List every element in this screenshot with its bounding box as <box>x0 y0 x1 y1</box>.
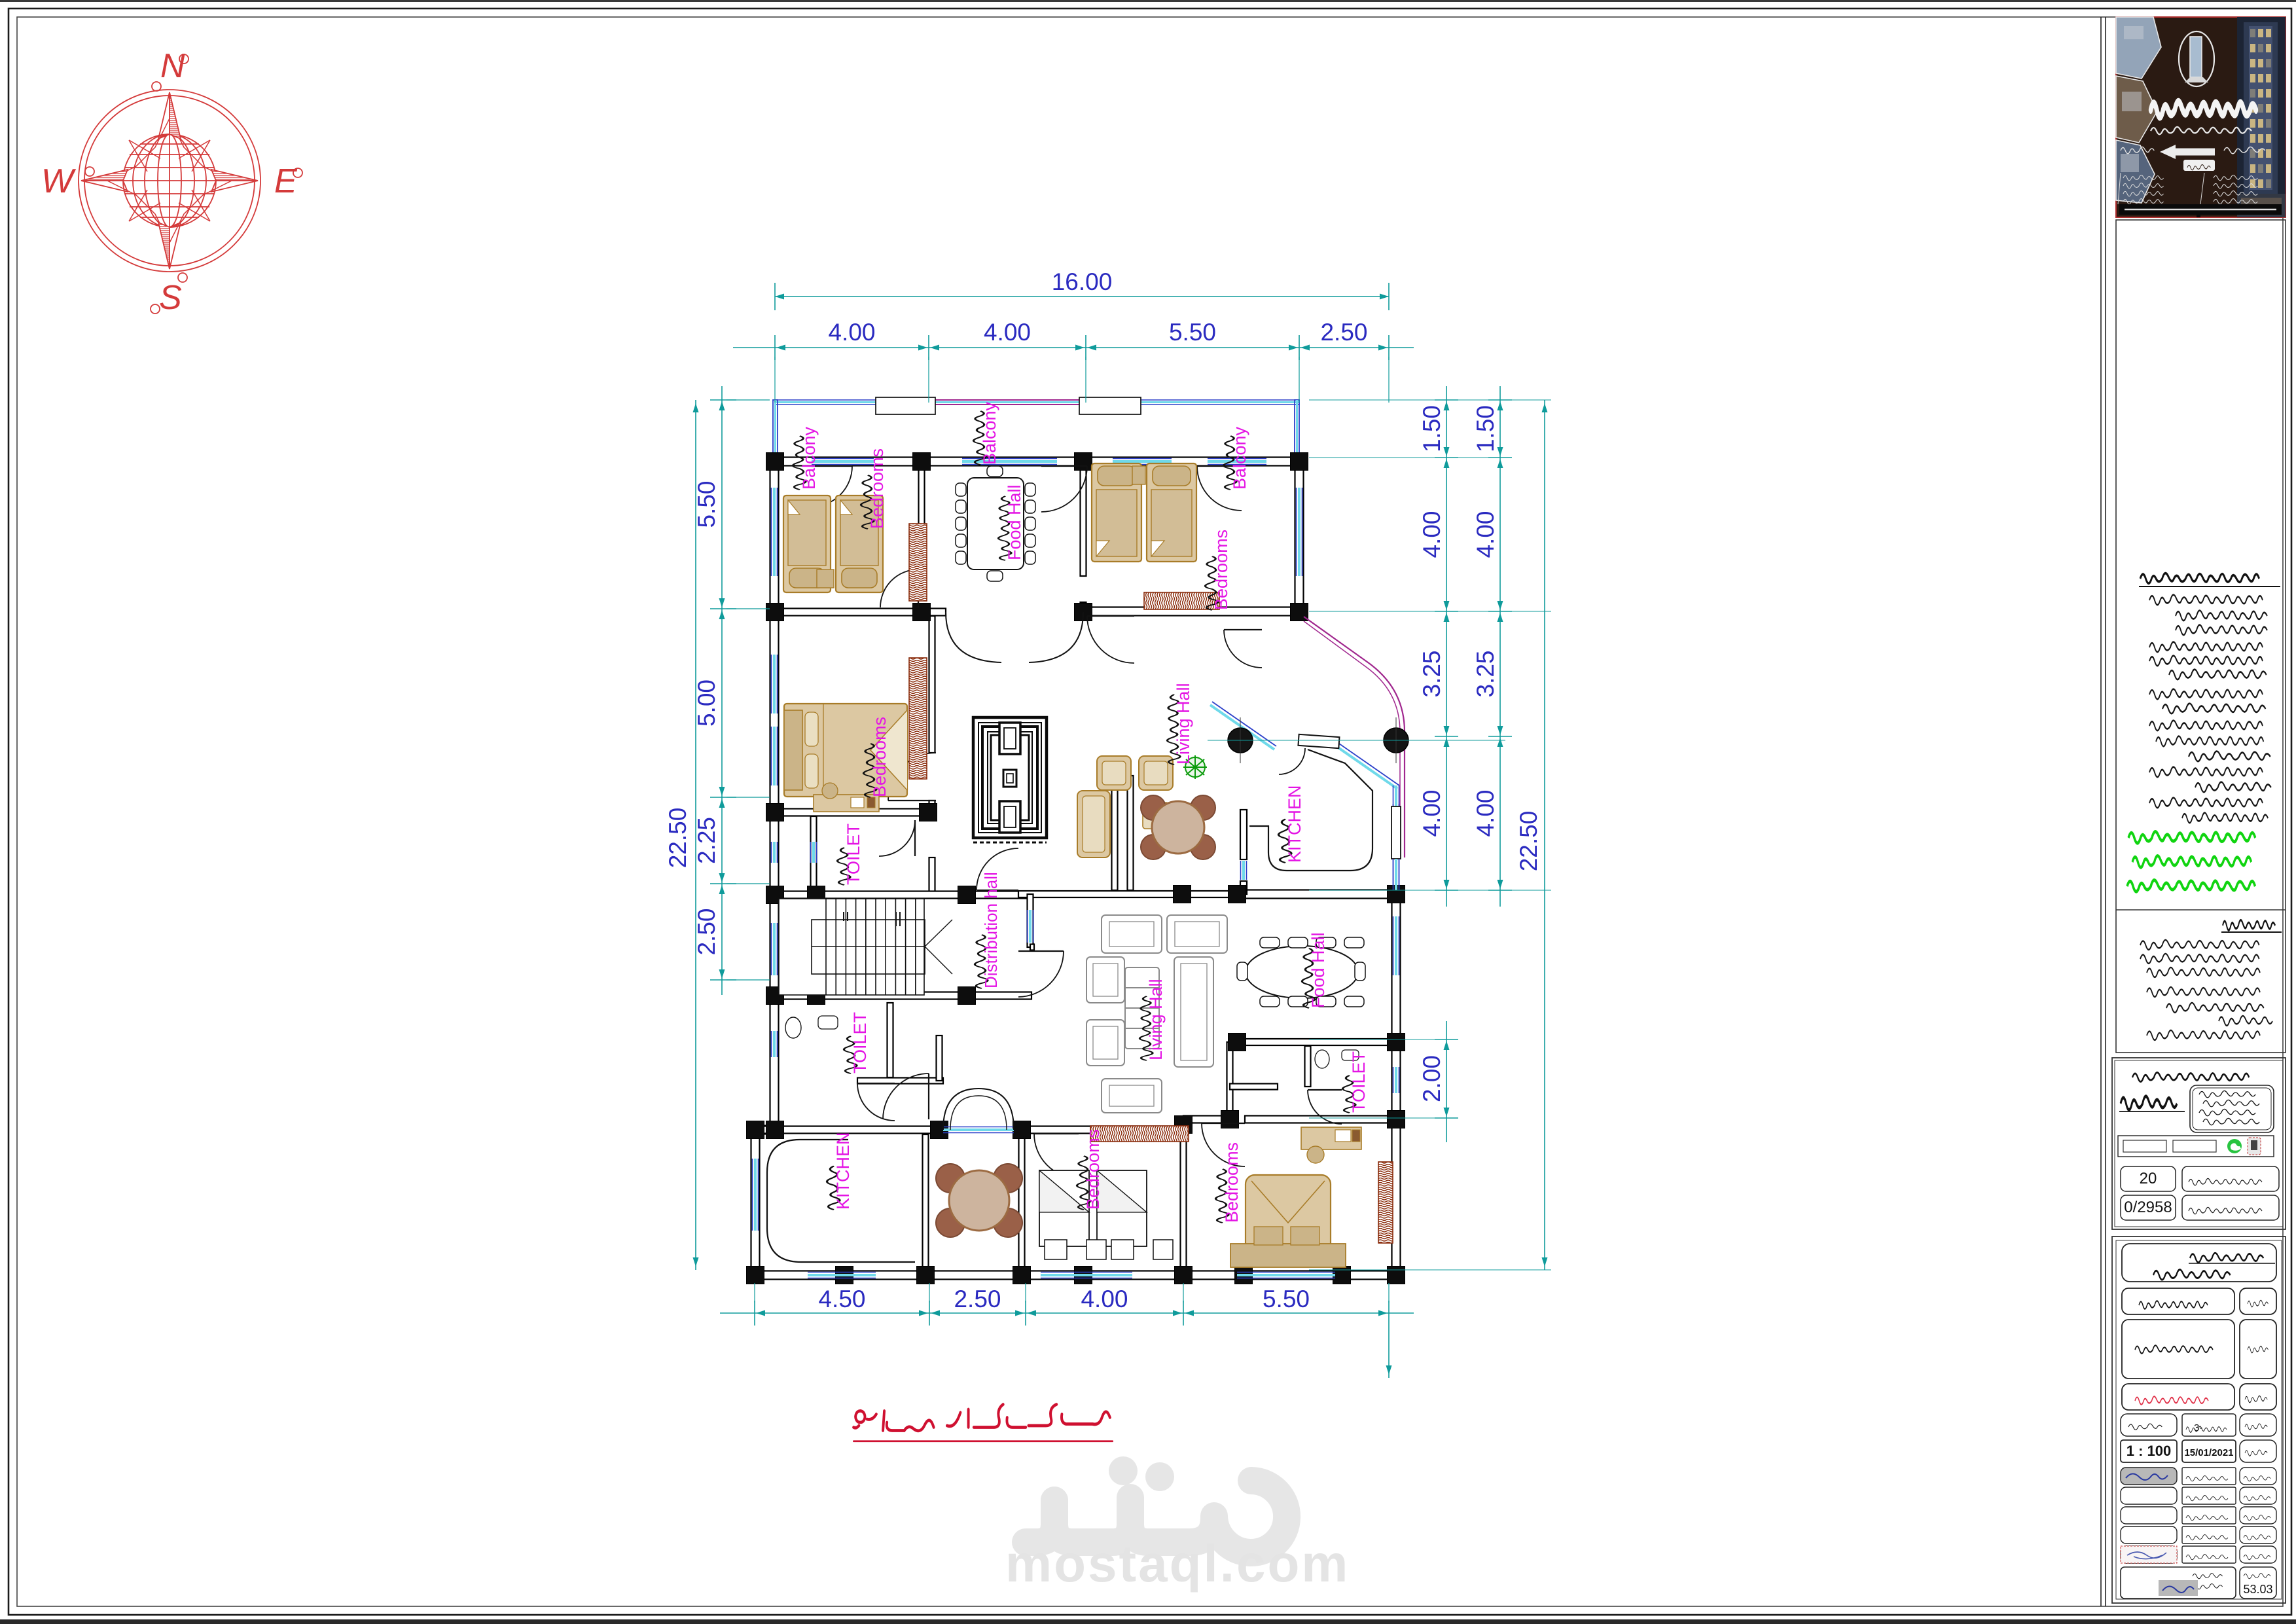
svg-text:Food Hall: Food Hall <box>1308 932 1328 1008</box>
svg-text:S: S <box>159 279 182 317</box>
svg-text:TOILET: TOILET <box>1349 1051 1369 1113</box>
svg-text:Bedrooms: Bedrooms <box>1083 1129 1103 1210</box>
svg-text:Living Hall: Living Hall <box>1146 979 1166 1060</box>
svg-text:W: W <box>41 162 77 200</box>
svg-text:4.00: 4.00 <box>984 319 1031 346</box>
svg-text:20: 20 <box>2140 1170 2157 1187</box>
svg-text:3-: 3- <box>2194 1422 2202 1434</box>
svg-text:5.00: 5.00 <box>693 679 720 727</box>
svg-text:4.50: 4.50 <box>818 1286 865 1312</box>
svg-text:3.25: 3.25 <box>1418 650 1445 697</box>
svg-text:Living Hall: Living Hall <box>1174 683 1193 765</box>
svg-text:4.00: 4.00 <box>1418 789 1445 837</box>
svg-text:16.00: 16.00 <box>1052 268 1113 295</box>
svg-text:53.03: 53.03 <box>2243 1583 2272 1596</box>
svg-text:Bedrooms: Bedrooms <box>1222 1142 1242 1223</box>
svg-text:3.25: 3.25 <box>1472 650 1499 697</box>
svg-text:5.50: 5.50 <box>1169 319 1216 346</box>
svg-text:22.50: 22.50 <box>1515 811 1542 872</box>
svg-text:4.00: 4.00 <box>1472 789 1499 837</box>
svg-text:TOILET: TOILET <box>844 823 863 885</box>
svg-text:Balcony: Balcony <box>1230 426 1249 490</box>
svg-text:2.50: 2.50 <box>693 908 720 955</box>
svg-text:1.50: 1.50 <box>1472 405 1499 452</box>
svg-text:22.50: 22.50 <box>664 808 691 869</box>
svg-text:E: E <box>274 162 298 200</box>
svg-text:1 : 100: 1 : 100 <box>2126 1443 2172 1459</box>
svg-text:mostaql.com: mostaql.com <box>1005 1534 1350 1593</box>
svg-text:Balcony: Balcony <box>799 426 819 490</box>
svg-text:TOILET: TOILET <box>850 1012 870 1074</box>
svg-text:4.00: 4.00 <box>1418 511 1445 558</box>
svg-text:Food Hall: Food Hall <box>1005 484 1024 560</box>
svg-text:KITCHEN: KITCHEN <box>833 1132 853 1210</box>
svg-text:Bedrooms: Bedrooms <box>867 448 887 529</box>
svg-text:2.00: 2.00 <box>1418 1055 1445 1102</box>
svg-text:5.50: 5.50 <box>1263 1286 1310 1312</box>
svg-text:15/01/2021: 15/01/2021 <box>2184 1447 2233 1458</box>
svg-text:KITCHEN: KITCHEN <box>1285 785 1304 863</box>
svg-text:Distribution hall: Distribution hall <box>981 872 1001 988</box>
svg-text:2.50: 2.50 <box>1320 319 1367 346</box>
svg-text:Balcony: Balcony <box>980 401 999 465</box>
svg-text:2.50: 2.50 <box>954 1286 1001 1312</box>
svg-text:Bedrooms: Bedrooms <box>870 717 889 797</box>
svg-text:1.50: 1.50 <box>1418 405 1445 452</box>
svg-text:5.50: 5.50 <box>693 480 720 528</box>
svg-text:0/2958: 0/2958 <box>2124 1199 2172 1216</box>
svg-text:4.00: 4.00 <box>1081 1286 1128 1312</box>
svg-text:4.00: 4.00 <box>1472 511 1499 558</box>
svg-text:4.00: 4.00 <box>828 319 875 346</box>
svg-text:N: N <box>160 47 185 85</box>
svg-text:2.25: 2.25 <box>693 817 720 864</box>
svg-text:Bedrooms: Bedrooms <box>1211 530 1231 610</box>
